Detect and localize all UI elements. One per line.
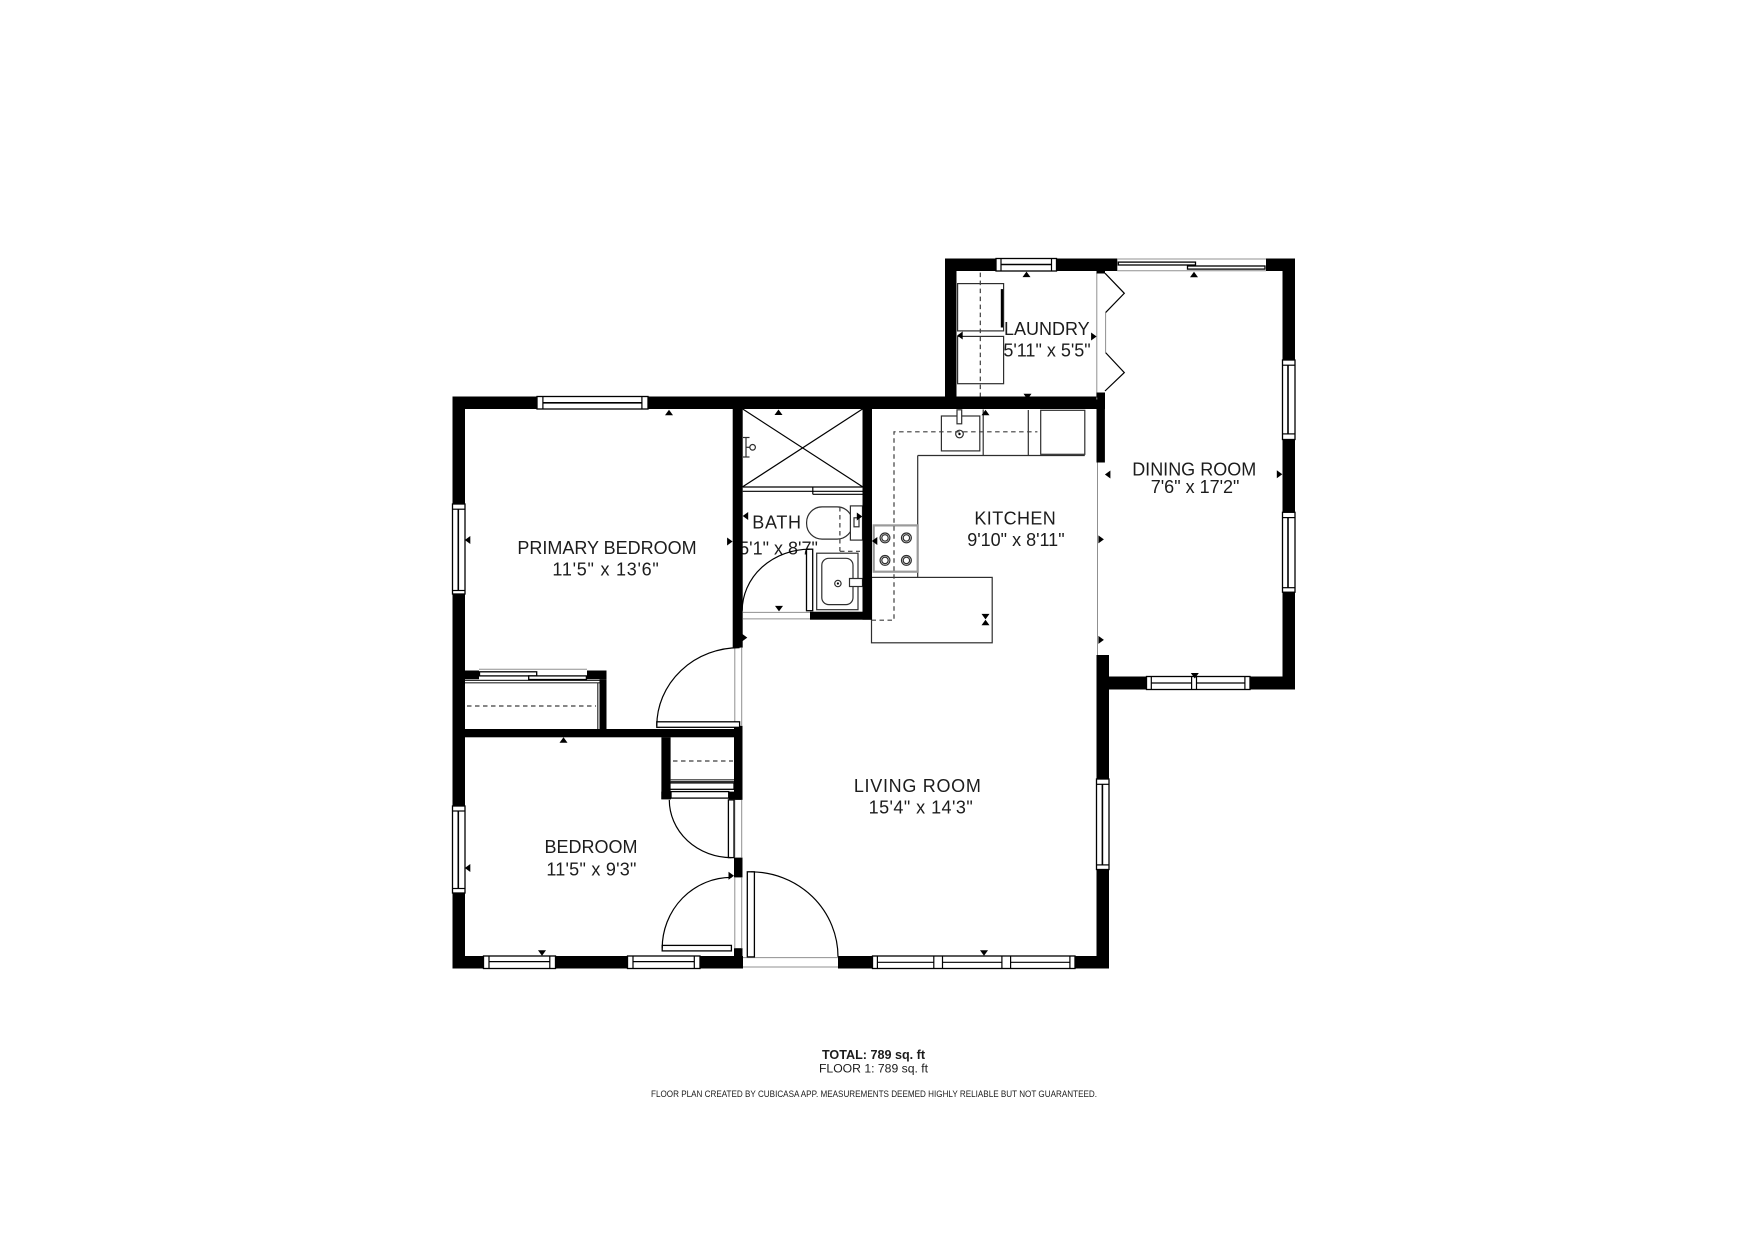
svg-text:5'11" x 5'5": 5'11" x 5'5": [1003, 341, 1090, 361]
svg-text:LAUNDRY: LAUNDRY: [1004, 319, 1090, 339]
svg-text:9'10" x 8'11": 9'10" x 8'11": [967, 530, 1064, 550]
svg-text:11'5" x 13'6": 11'5" x 13'6": [552, 560, 659, 580]
svg-text:PRIMARY BEDROOM: PRIMARY BEDROOM: [517, 538, 696, 558]
svg-text:11'5" x 9'3": 11'5" x 9'3": [546, 860, 636, 880]
svg-text:15'4" x 14'3": 15'4" x 14'3": [869, 798, 974, 818]
svg-text:KITCHEN: KITCHEN: [974, 509, 1056, 529]
svg-text:FLOOR 1: 789 sq. ft: FLOOR 1: 789 sq. ft: [819, 1062, 929, 1076]
svg-text:TOTAL: 789 sq. ft: TOTAL: 789 sq. ft: [822, 1048, 926, 1062]
svg-text:LIVING ROOM: LIVING ROOM: [854, 776, 982, 796]
svg-text:BATH: BATH: [752, 513, 801, 533]
svg-text:FLOOR PLAN CREATED BY CUBICASA: FLOOR PLAN CREATED BY CUBICASA APP. MEAS…: [651, 1089, 1097, 1099]
svg-text:7'6" x 17'2": 7'6" x 17'2": [1151, 477, 1240, 497]
svg-text:BEDROOM: BEDROOM: [544, 837, 637, 857]
